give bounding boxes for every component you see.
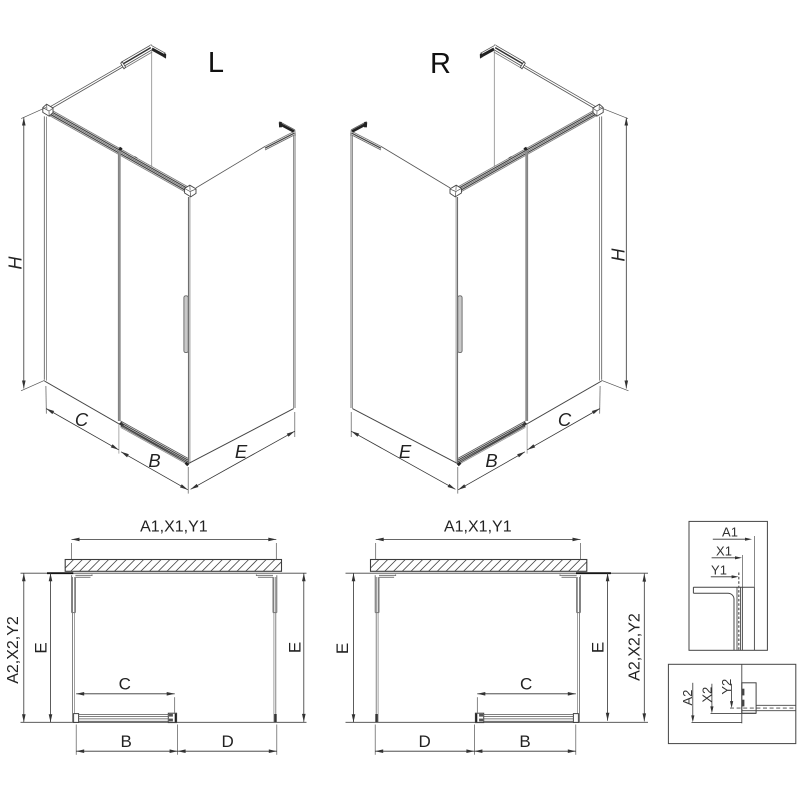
svg-text:C: C (520, 675, 532, 694)
svg-text:C: C (558, 409, 572, 430)
svg-text:D: D (418, 732, 430, 751)
svg-text:H: H (6, 256, 26, 270)
svg-text:A1,X1,Y1: A1,X1,Y1 (444, 519, 512, 536)
svg-text:A2,X2,Y2: A2,X2,Y2 (626, 613, 643, 681)
svg-text:E: E (399, 441, 412, 462)
svg-text:E: E (333, 643, 352, 654)
svg-text:X1: X1 (716, 543, 732, 558)
svg-text:D: D (222, 732, 234, 751)
svg-text:E: E (32, 642, 51, 653)
svg-text:B: B (121, 732, 132, 751)
svg-text:C: C (75, 409, 89, 430)
svg-text:A1: A1 (722, 524, 738, 539)
svg-text:E: E (588, 642, 607, 653)
svg-text:B: B (148, 450, 160, 471)
svg-text:E: E (285, 642, 304, 653)
svg-text:A1,X1,Y1: A1,X1,Y1 (140, 519, 208, 536)
svg-text:L: L (208, 47, 224, 79)
svg-text:R: R (430, 48, 451, 80)
svg-text:Y1: Y1 (711, 562, 727, 577)
svg-text:B: B (485, 450, 497, 471)
svg-text:E: E (235, 441, 248, 462)
svg-text:C: C (119, 675, 131, 694)
svg-text:A2,X2,Y2: A2,X2,Y2 (5, 616, 22, 684)
svg-text:B: B (519, 732, 530, 751)
svg-text:H: H (608, 248, 628, 262)
